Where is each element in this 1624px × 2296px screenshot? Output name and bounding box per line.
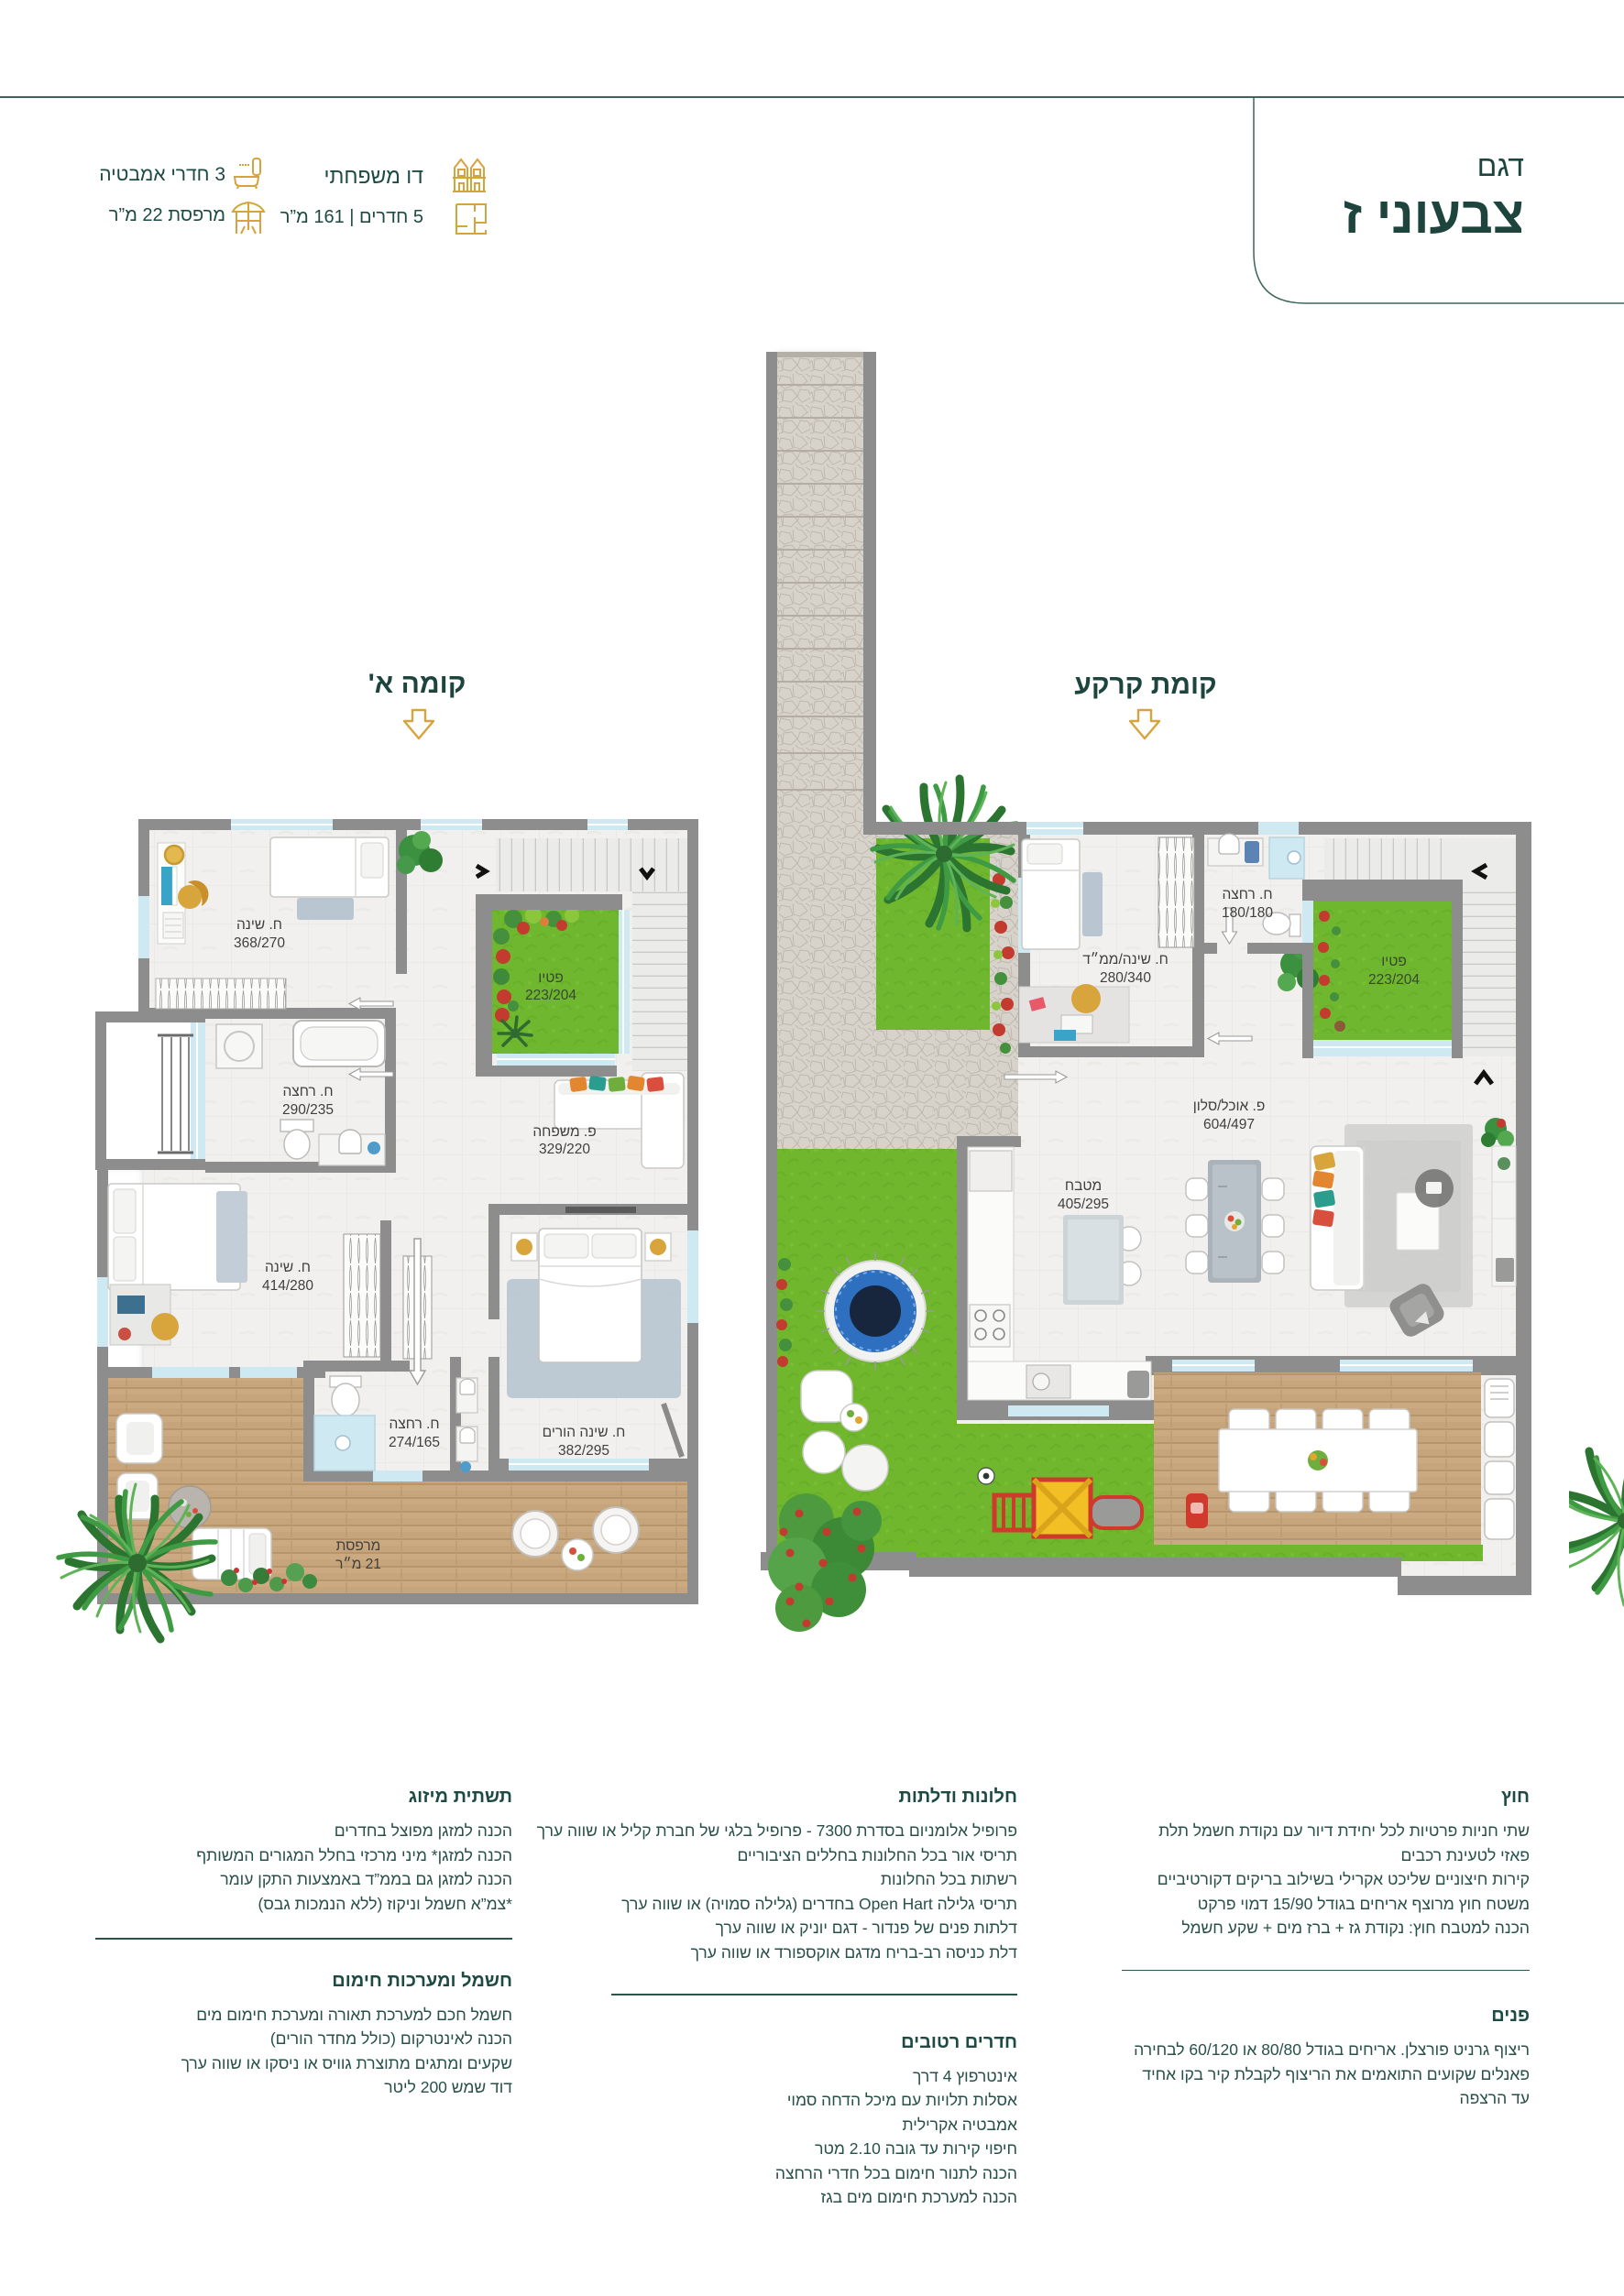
svg-text:180/180: 180/180: [1222, 905, 1273, 921]
svg-text:368/270: 368/270: [234, 935, 285, 951]
svg-text:223/204: 223/204: [525, 988, 576, 1003]
svg-text:604/497: 604/497: [1203, 1117, 1255, 1132]
svg-text:382/295: 382/295: [558, 1443, 609, 1459]
svg-text:פטיו: פטיו: [1381, 954, 1407, 969]
svg-text:414/280: 414/280: [262, 1278, 313, 1294]
svg-text:ח. שינה הורים: ח. שינה הורים: [543, 1425, 626, 1440]
svg-text:מטבח: מטבח: [1065, 1178, 1102, 1194]
svg-text:405/295: 405/295: [1058, 1197, 1109, 1212]
svg-text:ח. שינה: ח. שינה: [265, 1260, 311, 1275]
svg-text:290/235: 290/235: [282, 1102, 334, 1118]
svg-text:ח. רחצה: ח. רחצה: [389, 1416, 439, 1432]
svg-text:פ. אוכל/סלון: פ. אוכל/סלון: [1193, 1099, 1266, 1114]
svg-text:21 מ״ר: 21 מ״ר: [335, 1557, 381, 1572]
svg-text:329/220: 329/220: [539, 1142, 590, 1157]
svg-text:ח. שינה/ממ״ד: ח. שינה/ממ״ד: [1082, 952, 1169, 968]
svg-text:פטיו: פטיו: [538, 970, 564, 986]
svg-text:ח. שינה: ח. שינה: [236, 917, 282, 933]
svg-text:280/340: 280/340: [1100, 970, 1151, 986]
svg-text:274/165: 274/165: [389, 1435, 440, 1450]
svg-text:מרפסת: מרפסת: [336, 1538, 381, 1554]
svg-text:ח. רחצה: ח. רחצה: [1222, 887, 1272, 902]
svg-text:223/204: 223/204: [1368, 972, 1420, 988]
svg-text:פ. משפחה: פ. משפחה: [532, 1124, 596, 1140]
svg-text:ח. רחצה: ח. רחצה: [282, 1084, 333, 1099]
